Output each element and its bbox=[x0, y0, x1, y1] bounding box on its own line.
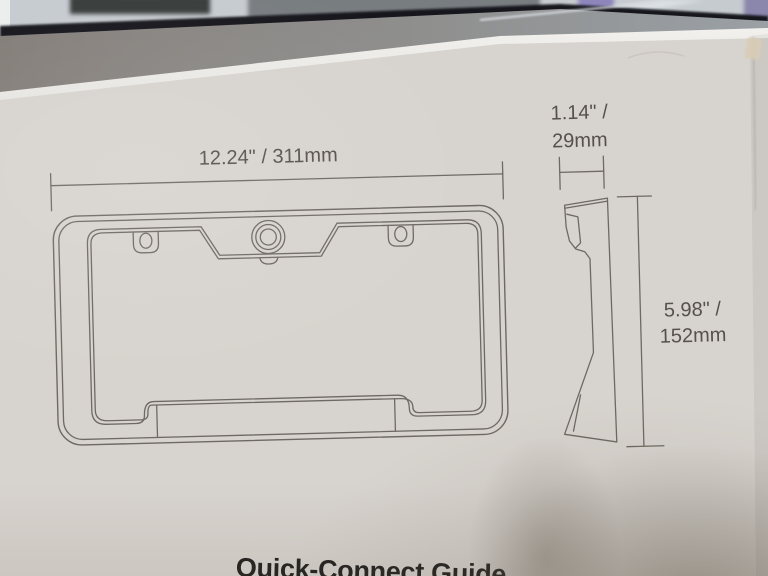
dimension-depth-label-line1: 1.14" / bbox=[550, 101, 608, 124]
height-dim-tick-top bbox=[617, 196, 651, 197]
width-dim-tick-right bbox=[502, 162, 503, 199]
dimension-labels: 12.24" / 311mm 1.14" / 29mm 5.98" / 152m… bbox=[197, 98, 726, 360]
frame-second-outline bbox=[58, 211, 503, 440]
printed-diagram-layer: 12.24" / 311mm 1.14" / 29mm 5.98" / 152m… bbox=[0, 0, 768, 576]
license-window-outline-outer bbox=[87, 219, 486, 424]
screw-oval-right bbox=[395, 226, 407, 241]
depth-dim-tick-right bbox=[603, 156, 604, 188]
dimension-depth-label-line2: 29mm bbox=[552, 129, 608, 152]
height-dim-line bbox=[637, 196, 644, 446]
side-profile-outline bbox=[558, 198, 616, 443]
side-camera-housing-facet bbox=[567, 214, 581, 248]
camera-circle-outer bbox=[251, 220, 285, 254]
dimension-width-line bbox=[51, 162, 504, 211]
screw-hole-left bbox=[133, 231, 159, 253]
screw-tab-outline-left bbox=[133, 231, 159, 253]
frame-front-view bbox=[53, 205, 509, 446]
dimension-height-line bbox=[617, 196, 664, 447]
camera-circle-inner bbox=[260, 229, 276, 245]
line-art bbox=[51, 155, 664, 462]
depth-dim-line bbox=[560, 171, 604, 172]
screw-hole-right bbox=[388, 225, 414, 247]
dimension-diagram: 12.24" / 311mm 1.14" / 29mm 5.98" / 152m… bbox=[0, 0, 768, 576]
bottom-tab-left-edge bbox=[157, 405, 158, 437]
height-dim-tick-bottom bbox=[627, 446, 664, 447]
width-dim-tick-left bbox=[51, 174, 52, 211]
camera-circle-middle bbox=[255, 224, 281, 250]
screw-tab-outline-right bbox=[388, 225, 414, 247]
frame-side-view bbox=[558, 198, 616, 443]
dimension-depth-line bbox=[559, 156, 604, 189]
dimension-width-label: 12.24" / 311mm bbox=[198, 144, 338, 170]
width-dim-line bbox=[51, 174, 503, 186]
bottom-tab-right-edge bbox=[395, 399, 396, 431]
screw-oval-left bbox=[140, 233, 152, 248]
dimension-height-label-line1: 5.98" / bbox=[664, 298, 722, 321]
dimension-height-label-line2: 152mm bbox=[659, 324, 726, 348]
depth-dim-tick-left bbox=[559, 157, 560, 189]
photo-scene: 12.24" / 311mm 1.14" / 29mm 5.98" / 152m… bbox=[0, 0, 768, 576]
